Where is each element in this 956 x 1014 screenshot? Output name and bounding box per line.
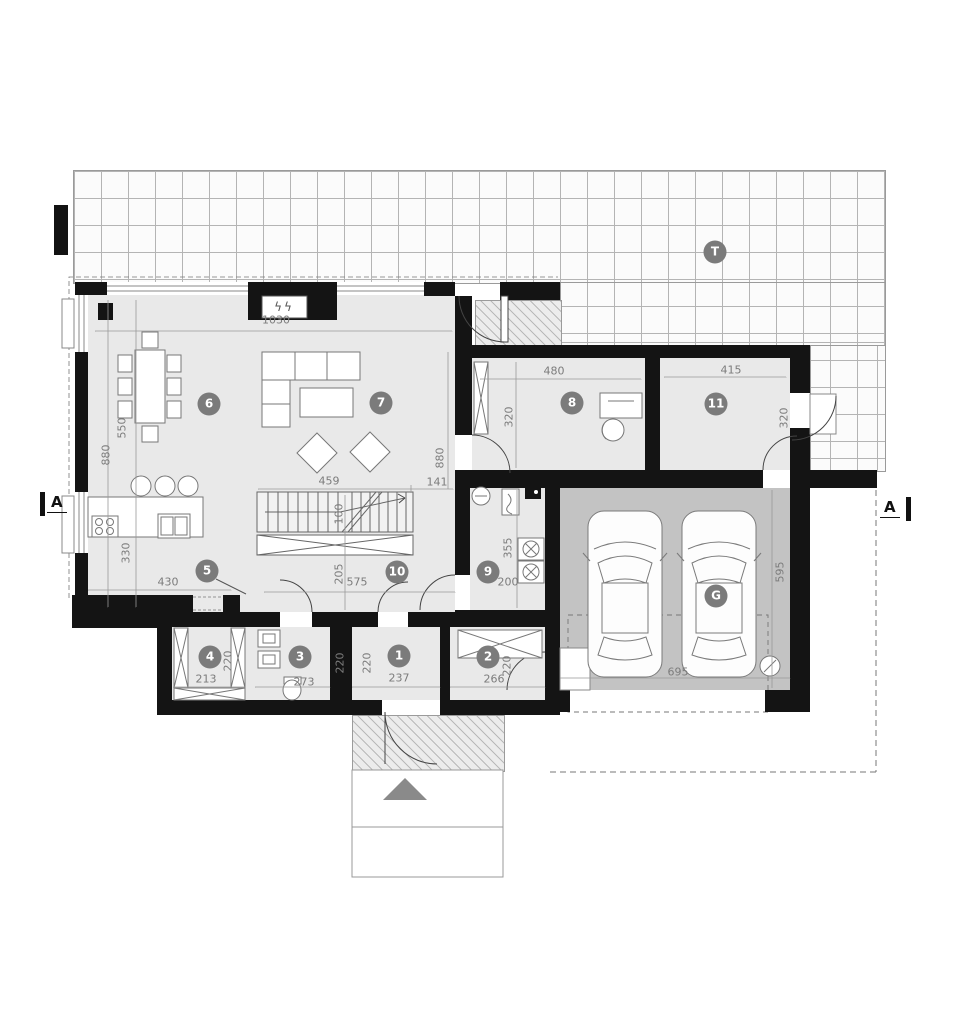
section-bar-left <box>40 492 45 516</box>
dimension-label: 320 <box>778 408 791 429</box>
room-number-badge: 2 <box>477 646 500 669</box>
column <box>98 303 113 320</box>
room-number-badge: 4 <box>199 646 222 669</box>
dimension-label: 415 <box>721 364 742 377</box>
stool <box>155 476 175 496</box>
room-number-badge: 3 <box>289 646 312 669</box>
room-number-badge: 10 <box>386 561 409 584</box>
dimension-label: 330 <box>120 543 133 564</box>
desk <box>600 393 642 418</box>
dimension-label: 480 <box>544 365 565 378</box>
dimension-label: 100 <box>333 504 346 525</box>
dimension-label: 220 <box>501 656 514 677</box>
section-marker-left: A <box>47 494 67 513</box>
dimension-label: 695 <box>668 666 689 679</box>
dimension-label: 595 <box>774 562 787 583</box>
dimension-label: 200 <box>498 576 519 589</box>
coffee-table <box>300 388 353 417</box>
dimension-label: 459 <box>319 475 340 488</box>
fireplace-icon: ϟϟ <box>274 300 294 314</box>
dimension-label: 273 <box>294 676 315 689</box>
terrace-wall-stub <box>54 205 68 255</box>
washer-dryer <box>518 538 544 583</box>
room-number-badge: 1 <box>388 645 411 668</box>
dimension-label: 575 <box>347 576 368 589</box>
dimension-label: 1030 <box>262 314 290 327</box>
room-number-badge: 7 <box>370 392 393 415</box>
dimension-label: 320 <box>503 407 516 428</box>
stool <box>131 476 151 496</box>
room-number-badge: 11 <box>705 393 728 416</box>
dimension-label: 237 <box>389 672 410 685</box>
dimension-label: 880 <box>100 445 113 466</box>
dimension-label: 880 <box>434 448 447 469</box>
dimension-label: 355 <box>502 538 515 559</box>
stool <box>178 476 198 496</box>
dimension-label: 220 <box>334 653 347 674</box>
dimension-label: 141 <box>427 476 448 489</box>
section-bar-right <box>906 497 911 521</box>
plan-linework <box>0 0 956 1014</box>
dimension-label: 220 <box>361 653 374 674</box>
window-sill <box>62 299 74 348</box>
floor-plan: 1234567891011 10305508808804591414804153… <box>0 0 956 1014</box>
dimension-label: 213 <box>196 673 217 686</box>
room-number-badge: 8 <box>561 392 584 415</box>
dimension-label: 220 <box>222 651 235 672</box>
terrace-badge: T <box>704 241 727 264</box>
entry-steps <box>352 770 503 877</box>
room-number-badge: 6 <box>198 393 221 416</box>
dimension-label: 430 <box>158 576 179 589</box>
room-number-badge: 9 <box>477 561 500 584</box>
kitchen-island <box>88 497 203 538</box>
dimension-label: 550 <box>116 418 129 439</box>
dining-table <box>135 350 165 423</box>
boiler <box>525 487 541 499</box>
garage-badge: G <box>705 585 728 608</box>
dimension-label: 205 <box>333 564 346 585</box>
section-marker-right: A <box>880 499 900 518</box>
room-number-badge: 5 <box>196 560 219 583</box>
